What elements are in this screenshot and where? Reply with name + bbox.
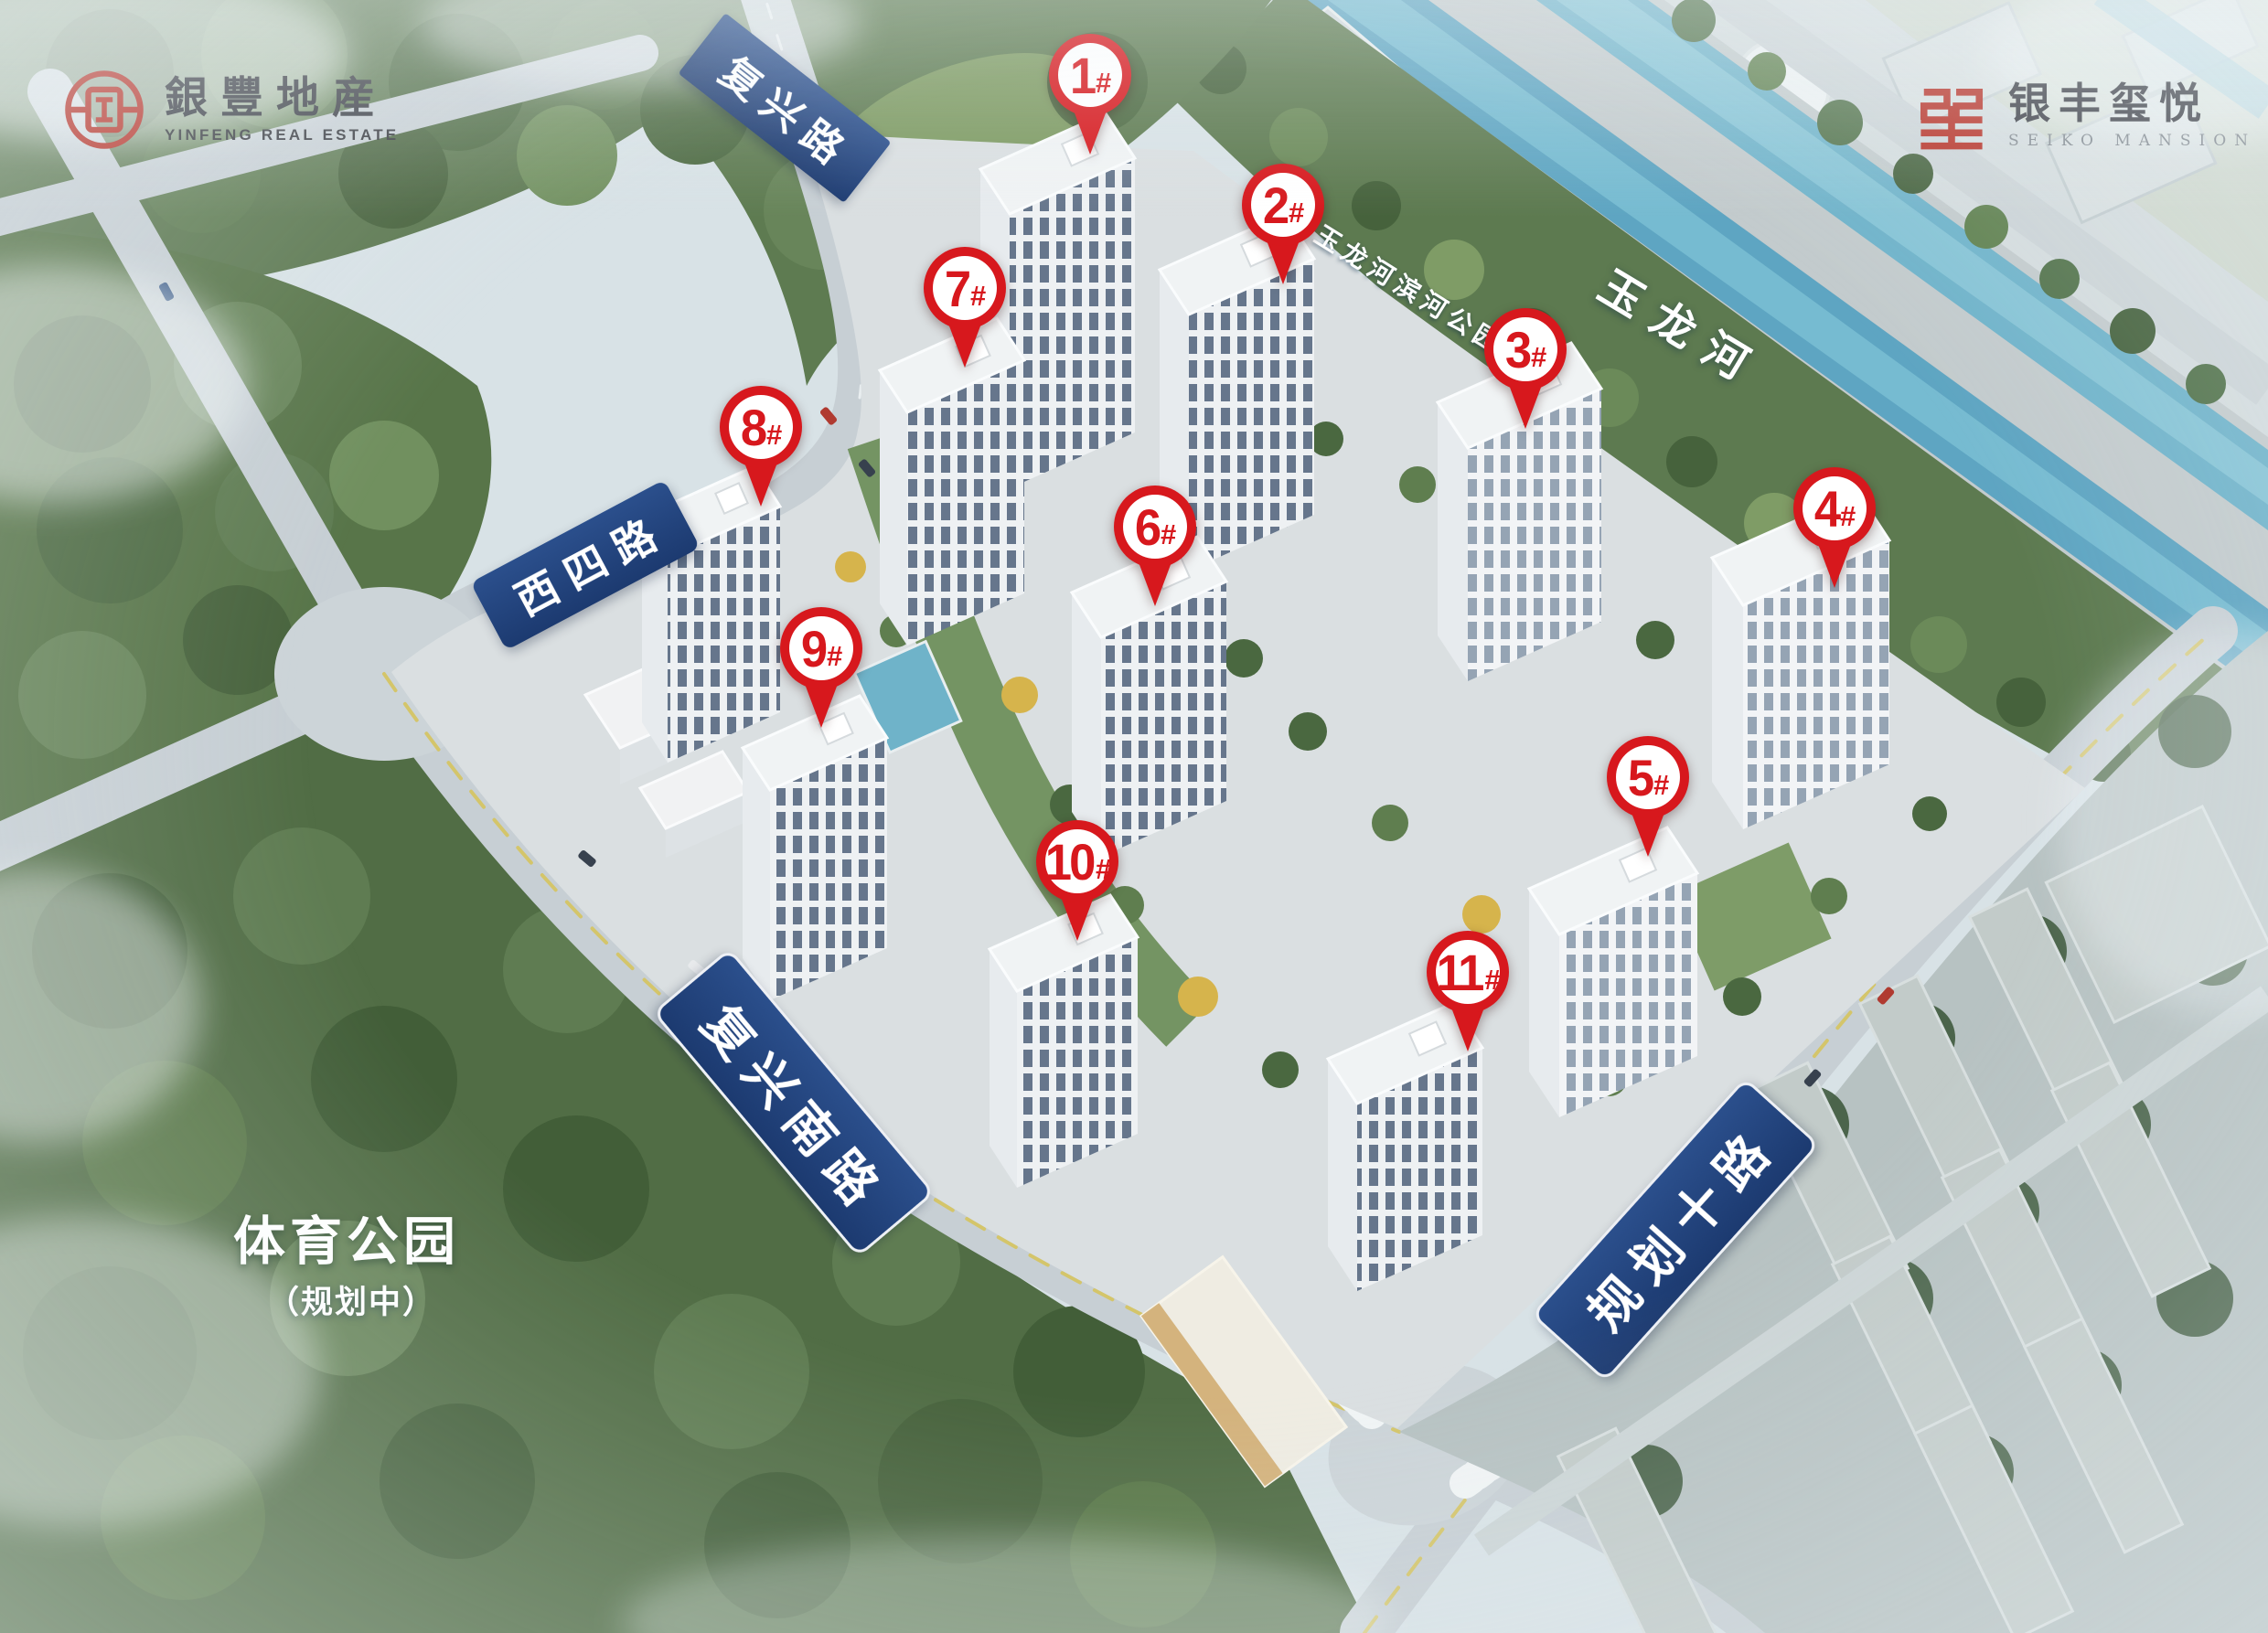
sports-park-status-label: （规划中） — [267, 1276, 436, 1323]
marker-number: 6 — [1135, 497, 1159, 557]
building-marker-2[interactable]: 2# — [1237, 162, 1329, 290]
marker-number: 4 — [1814, 479, 1838, 539]
developer-logo: 銀豐地産 YINFENG REAL ESTATE — [62, 68, 399, 152]
marker-suffix: # — [1840, 500, 1856, 533]
building-marker-5[interactable]: 5# — [1602, 734, 1694, 862]
marker-number: 10 — [1044, 832, 1093, 891]
marker-number: 3 — [1505, 320, 1529, 379]
building-marker-8[interactable]: 8# — [715, 384, 807, 512]
developer-name-en: YINFENG REAL ESTATE — [165, 126, 399, 144]
project-logo: 银丰玺悦 SEIKO MANSION — [1913, 77, 2256, 154]
marker-suffix: # — [1096, 67, 1111, 100]
building-marker-3[interactable]: 3# — [1480, 306, 1571, 434]
aerial-scene — [0, 0, 2268, 1633]
masterplan-rendering: 銀豐地産 YINFENG REAL ESTATE 银丰玺悦 SEIKO MANS… — [0, 0, 2268, 1633]
sports-park-label: 体育公园 — [233, 1200, 460, 1275]
marker-suffix: # — [1653, 769, 1669, 802]
developer-seal-icon — [62, 68, 146, 152]
marker-suffix: # — [1531, 341, 1546, 374]
marker-number: 7 — [945, 259, 968, 318]
project-name-en: SEIKO MANSION — [2008, 132, 2256, 150]
marker-number: 5 — [1628, 748, 1652, 807]
marker-number: 9 — [801, 619, 825, 678]
marker-suffix: # — [970, 280, 986, 313]
building-marker-4[interactable]: 4# — [1789, 465, 1880, 593]
building-marker-1[interactable]: 1# — [1044, 32, 1136, 160]
marker-suffix: # — [1096, 853, 1111, 886]
building-marker-9[interactable]: 9# — [776, 605, 867, 733]
marker-suffix: # — [1161, 518, 1176, 551]
sports-park-status-text: （规划中） — [267, 1285, 436, 1320]
marker-suffix: # — [827, 640, 842, 673]
marker-suffix: # — [766, 419, 782, 452]
marker-suffix: # — [1484, 964, 1500, 997]
marker-number: 1 — [1070, 46, 1094, 105]
building-marker-10[interactable]: 10# — [1032, 818, 1123, 946]
building-marker-11[interactable]: 11# — [1422, 929, 1514, 1057]
marker-number: 8 — [741, 398, 765, 457]
project-name-zh: 银丰玺悦 — [2008, 80, 2256, 127]
marker-number: 2 — [1263, 176, 1287, 235]
project-seal-icon — [1913, 77, 1990, 154]
developer-name-zh: 銀豐地産 — [165, 75, 399, 123]
sports-park-label-text: 体育公园 — [233, 1212, 460, 1271]
marker-number: 11 — [1437, 943, 1482, 1002]
building-marker-6[interactable]: 6# — [1109, 484, 1201, 612]
building-marker-7[interactable]: 7# — [919, 245, 1011, 373]
tower-9 — [743, 696, 887, 1000]
marker-suffix: # — [1289, 197, 1304, 229]
